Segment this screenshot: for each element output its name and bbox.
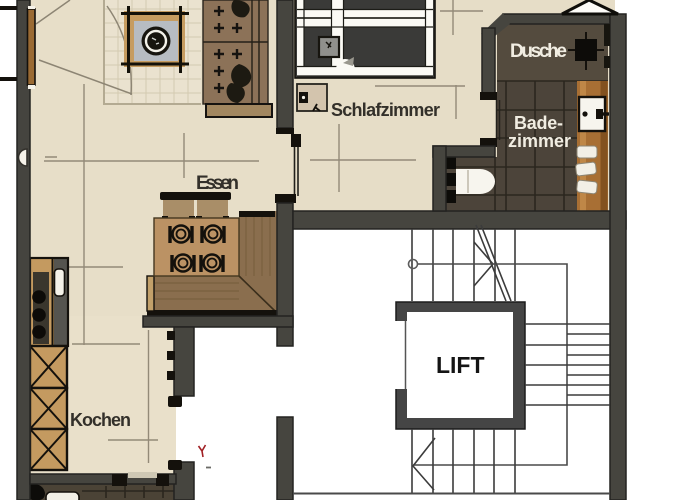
svg-text:Dusche: Dusche [510,41,567,62]
svg-text:Essen: Essen [196,173,239,194]
svg-text:Schlafzimmer: Schlafzimmer [331,100,440,120]
svg-text:zimmer: zimmer [508,131,571,151]
svg-text:LIFT: LIFT [436,352,488,378]
svg-text:Bade-: Bade- [514,113,563,133]
svg-text:Kochen: Kochen [70,410,131,430]
